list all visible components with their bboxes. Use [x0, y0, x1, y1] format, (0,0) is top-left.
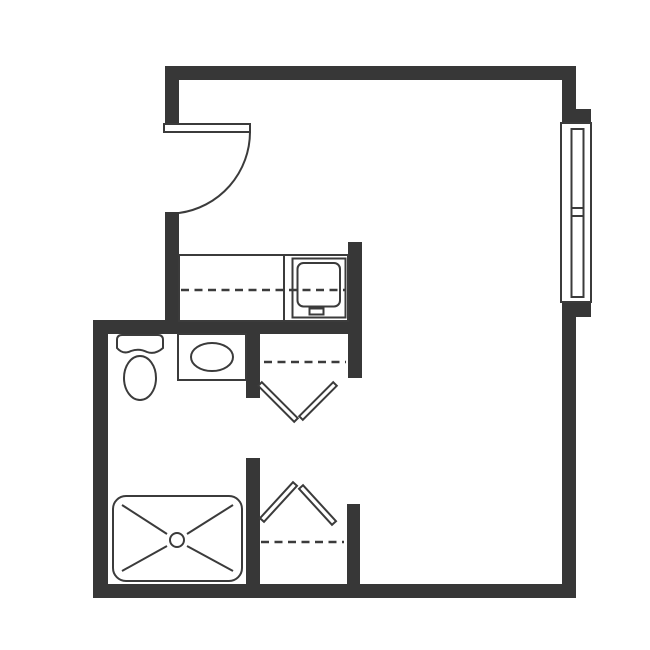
- closet-lower-right-wall: [347, 504, 360, 584]
- entry-wall-lower: [165, 212, 179, 334]
- entry-door-swing-arc: [179, 132, 250, 213]
- bottom-wall: [93, 584, 576, 598]
- window-jamb-top: [562, 109, 591, 123]
- closet-upper-door-right: [299, 382, 337, 420]
- entry-wall-upper: [165, 66, 179, 125]
- sink-basin: [191, 343, 233, 371]
- toilet-bowl: [124, 356, 156, 400]
- kitchen-partition-wall: [348, 242, 362, 378]
- shower-drain: [170, 533, 184, 547]
- stove-top: [298, 263, 341, 307]
- window-glazing: [572, 129, 584, 297]
- right-wall-lower: [562, 317, 576, 598]
- closet-upper-door-left: [258, 382, 298, 422]
- top-wall: [165, 66, 576, 80]
- window-jamb-bottom: [562, 301, 591, 317]
- floor-plan-page: [0, 0, 650, 650]
- bathroom-top-wall: [93, 320, 362, 334]
- bathroom-partition-lower: [246, 458, 260, 584]
- entry-door-leaf: [164, 124, 250, 132]
- toilet-tank: [117, 335, 163, 353]
- stove-drawer: [310, 309, 324, 315]
- closet-lower-door-left: [260, 482, 297, 522]
- floor-plan: [0, 0, 650, 650]
- closet-lower-door-right: [299, 485, 336, 525]
- right-wall-upper: [562, 66, 576, 109]
- left-wall: [93, 320, 108, 598]
- bathroom-partition-upper: [246, 334, 260, 398]
